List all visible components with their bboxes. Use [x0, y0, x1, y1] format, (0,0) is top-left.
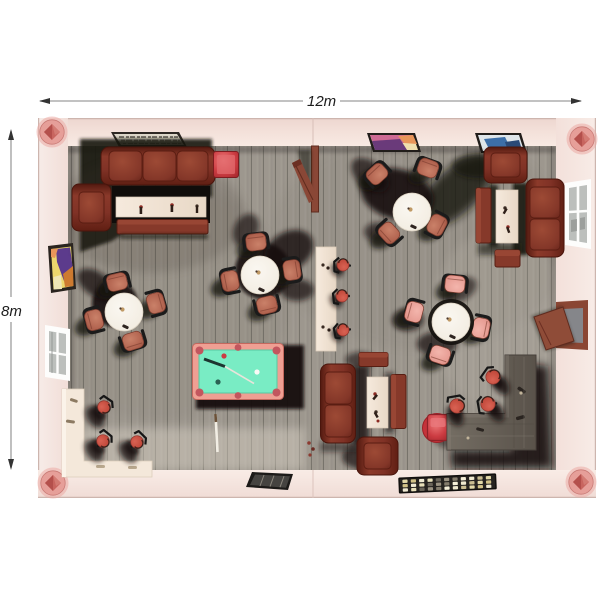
svg-text:12m: 12m — [307, 93, 336, 110]
svg-text:8m: 8m — [1, 303, 22, 320]
